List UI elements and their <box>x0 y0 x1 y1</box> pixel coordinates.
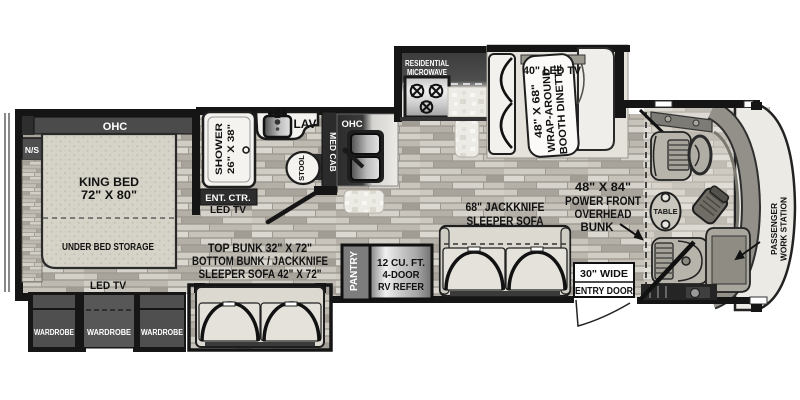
svg-text:LED TV: LED TV <box>210 205 246 216</box>
svg-text:POWER FRONT: POWER FRONT <box>565 196 641 208</box>
svg-text:N/S: N/S <box>25 145 40 155</box>
svg-text:OHC: OHC <box>341 119 362 130</box>
svg-text:72" X 80": 72" X 80" <box>81 190 137 202</box>
svg-text:MED CAB: MED CAB <box>328 132 338 172</box>
svg-text:BUNK: BUNK <box>581 222 615 234</box>
svg-text:WARDROBE: WARDROBE <box>34 328 75 337</box>
svg-text:UNDER BED STORAGE: UNDER BED STORAGE <box>62 241 154 253</box>
svg-text:4-DOOR: 4-DOOR <box>383 269 420 281</box>
svg-text:WARDROBE: WARDROBE <box>87 328 132 337</box>
svg-text:12 CU. FT.: 12 CU. FT. <box>377 257 425 269</box>
svg-text:RESIDENTIAL: RESIDENTIAL <box>405 59 449 68</box>
svg-text:WARDROBE: WARDROBE <box>141 328 184 337</box>
svg-text:PASSENGER: PASSENGER <box>770 203 779 255</box>
svg-text:TABLE: TABLE <box>654 207 678 216</box>
svg-text:SLEEPER SOFA: SLEEPER SOFA <box>467 216 544 228</box>
svg-text:SHOWER: SHOWER <box>214 123 225 175</box>
svg-text:SLEEPER SOFA 42" X 72": SLEEPER SOFA 42" X 72" <box>199 269 322 281</box>
svg-text:LAV: LAV <box>294 119 317 131</box>
svg-text:26" X 38": 26" X 38" <box>226 124 237 174</box>
svg-text:68" JACKKNIFE: 68" JACKKNIFE <box>466 202 545 214</box>
svg-text:30" WIDE: 30" WIDE <box>580 268 628 280</box>
svg-text:TOP BUNK 32" X 72": TOP BUNK 32" X 72" <box>208 243 312 255</box>
svg-text:ENT. CTR.: ENT. CTR. <box>205 193 250 204</box>
svg-text:LED TV: LED TV <box>90 280 127 292</box>
svg-text:40" LED TV: 40" LED TV <box>523 65 582 77</box>
svg-text:ENTRY DOOR: ENTRY DOOR <box>575 285 633 297</box>
svg-text:KING BED: KING BED <box>79 177 139 189</box>
svg-text:OVERHEAD: OVERHEAD <box>575 209 632 221</box>
svg-text:BOTTOM BUNK / JACKKNIFE: BOTTOM BUNK / JACKKNIFE <box>192 256 328 268</box>
svg-text:WORK STATION: WORK STATION <box>780 197 789 261</box>
svg-text:STOOL: STOOL <box>297 155 306 181</box>
svg-text:48" X 84": 48" X 84" <box>575 182 631 194</box>
svg-text:OHC: OHC <box>103 121 128 133</box>
svg-text:RV REFER: RV REFER <box>378 281 424 293</box>
svg-text:PANTRY: PANTRY <box>348 251 360 291</box>
